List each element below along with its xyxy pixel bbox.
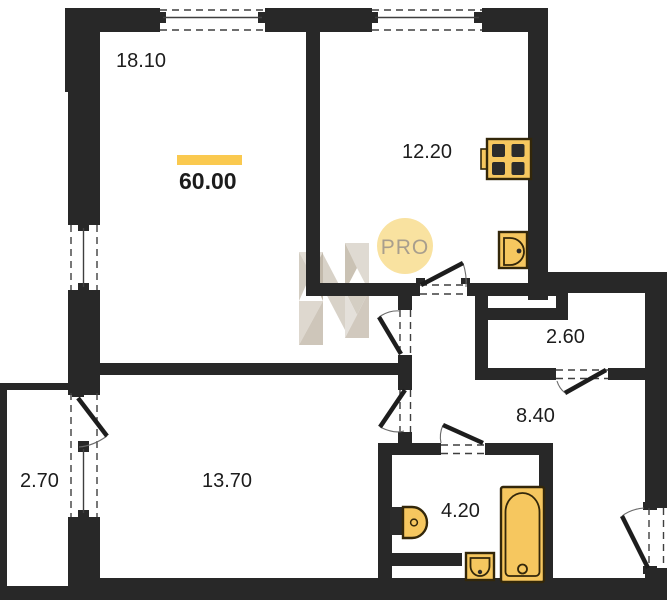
wall-storage-bottom-left [475,368,556,380]
wall-left-lower [68,517,100,588]
wall-bottom [100,578,667,600]
wall-storage-left [475,296,488,380]
wall-kitchen-bottom-right [467,283,568,296]
bedroom-door-leaf [380,390,405,427]
wall-center-mid [398,355,412,390]
wall-balcony-left [0,383,7,600]
label-total-area: 60.00 [179,168,237,194]
wall-balcony-bottom [0,586,100,600]
door-stub [72,389,84,397]
entrance-door-leaf [622,516,648,568]
bathtub-icon [501,487,544,582]
wall-top-b [265,8,372,32]
bathroom-door-leaf [443,425,483,443]
label-kitchen: 12.20 [402,141,452,163]
pro-badge-text: PRO [381,236,430,259]
wall-left-upper [68,92,100,225]
floor-plan-page: PRO 18.10 12.20 60.00 2.60 8.40 13.70 2.… [0,0,667,600]
wall-bathroom-top-right [485,443,553,455]
label-balcony: 2.70 [20,470,59,492]
door-stub [643,502,657,510]
toilet-icon [390,507,427,538]
wall-center-top-stub [398,296,412,310]
floor-plan-canvas: PRO 18.10 12.20 60.00 2.60 8.40 13.70 2.… [0,0,667,600]
balcony-door-leaf [78,398,107,436]
wall-duct-right [556,283,568,320]
wall-kitchen-living-divider [306,32,320,290]
wall-bathroom-top-left [378,443,441,455]
wall-top-left-corner [65,8,100,92]
wall-balcony-top [0,383,73,390]
storage-door-arc [557,381,565,393]
total-area-highlight [177,155,242,165]
wall-living-bedroom-divider [100,363,398,375]
kitchen-door-leaf [421,263,463,285]
wall-bathroom-left [378,455,392,578]
wall-right-upper [645,272,667,508]
pro-watermark-badge: PRO [377,218,433,274]
door-stub [461,278,470,284]
living-door-leaf [379,317,401,354]
wall-storage-bottom-right [608,368,667,380]
label-living-room: 18.10 [116,50,166,72]
storage-door-leaf [565,370,606,393]
bathroom-door-arc [440,425,443,443]
wall-left-mid [68,290,100,395]
living-door-arc [379,311,400,317]
kitchen-sink-icon [499,232,527,268]
label-storage: 2.60 [546,326,585,348]
washbasin-icon [466,553,494,580]
entrance-door-arc [622,508,644,516]
label-bedroom: 13.70 [202,470,252,492]
wall-kitchen-bottom-left [306,283,420,296]
wall-bathroom-partition [392,553,462,566]
label-bathroom: 4.20 [441,500,480,522]
label-hallway: 8.40 [516,405,555,427]
stove-icon [481,139,531,179]
